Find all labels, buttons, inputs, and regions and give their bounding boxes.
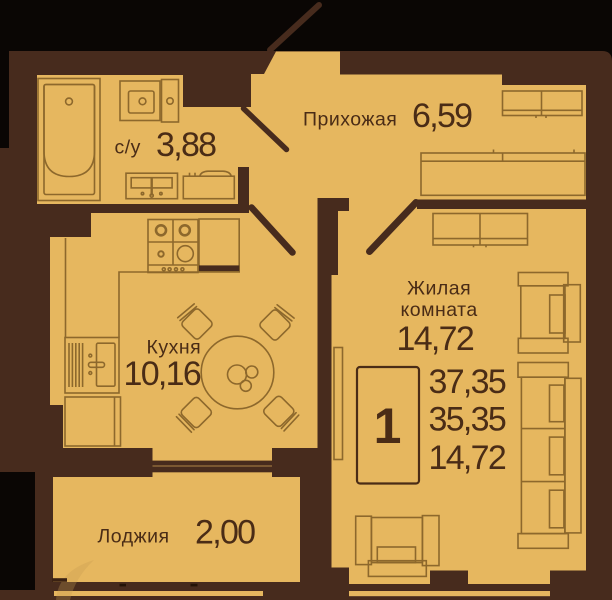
svg-text:10,16: 10,16 [124, 355, 201, 393]
svg-text:2,00: 2,00 [195, 514, 255, 552]
svg-text:14,72: 14,72 [429, 439, 506, 477]
svg-text:Прихожая: Прихожая [303, 109, 397, 131]
svg-text:Лоджия: Лоджия [98, 526, 170, 548]
svg-text:6,59: 6,59 [412, 97, 472, 135]
svg-text:Жилая: Жилая [407, 278, 471, 300]
svg-text:37,35: 37,35 [429, 363, 506, 401]
svg-text:с/у: с/у [115, 137, 141, 159]
svg-text:35,35: 35,35 [429, 401, 506, 439]
svg-text:3,88: 3,88 [156, 126, 216, 164]
svg-text:1: 1 [374, 398, 402, 454]
svg-text:комната: комната [401, 299, 478, 321]
svg-text:14,72: 14,72 [397, 320, 474, 358]
